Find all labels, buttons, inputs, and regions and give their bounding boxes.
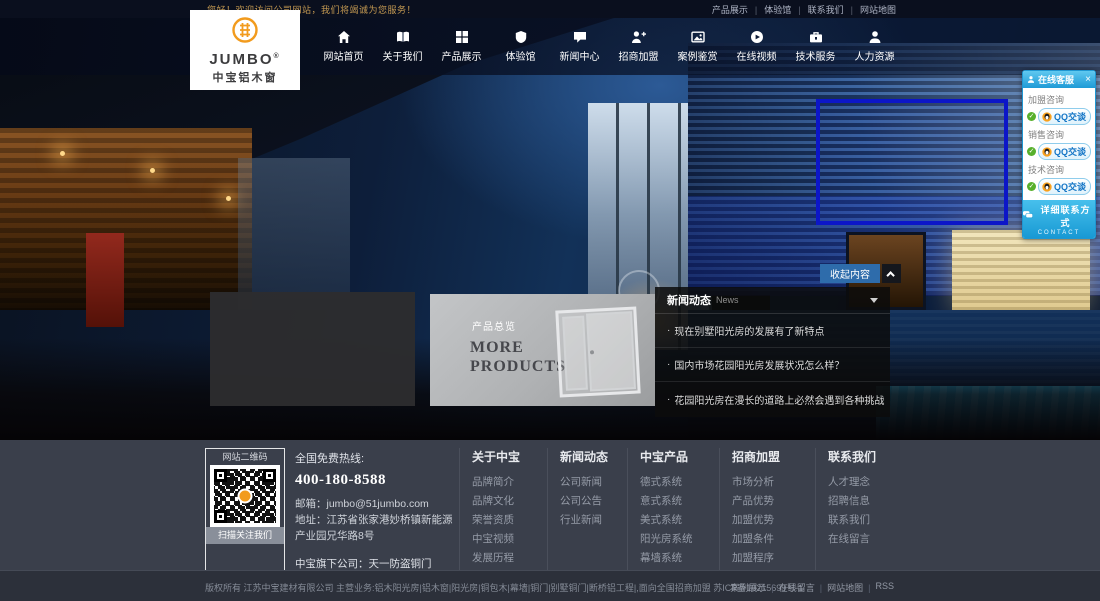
footer-link[interactable]: 产品优势 xyxy=(732,492,815,511)
online-service-header: 在线客服 × xyxy=(1023,71,1095,88)
book-icon xyxy=(396,30,410,44)
footer-link[interactable]: 加盟程序 xyxy=(732,549,815,568)
nav-item-tech[interactable]: 技术服务 xyxy=(786,18,845,75)
contact-detail-button[interactable]: 详细联系方式 CONTACT xyxy=(1023,200,1095,238)
news-item[interactable]: 花园阳光房在漫长的道路上必然会遇到各种挑战 xyxy=(655,382,890,416)
nav-label: 体验馆 xyxy=(506,48,536,63)
topbar-link-products[interactable]: 产品展示 xyxy=(712,3,764,16)
footer-column-title: 关于中宝 xyxy=(472,448,547,465)
window-graphic-icon xyxy=(555,304,641,405)
video-icon xyxy=(750,30,764,44)
user-icon xyxy=(868,30,882,44)
footer-column-title: 中宝产品 xyxy=(640,448,719,465)
news-item[interactable]: 国内市场花园阳光房发展状况怎么样？ xyxy=(655,348,890,382)
topbar-link-contact[interactable]: 联系我们 xyxy=(808,3,860,16)
online-service-panel: 在线客服 × 加盟咨询 ✓ QQ交谈 销售咨询 ✓ QQ交谈 技术咨询 xyxy=(1022,70,1096,239)
products-tag: 产品总览 xyxy=(472,318,516,333)
nav-label: 人力资源 xyxy=(855,48,895,63)
site-logo[interactable]: JUMBO® 中宝铝木窗 xyxy=(190,10,300,90)
footer-address: 地址：江苏省张家港妙桥镇新能源产业园兄华路8号 xyxy=(295,512,453,544)
footer-link[interactable]: 阳光房系统 xyxy=(640,530,719,549)
chat-icon xyxy=(573,30,587,44)
footer-link[interactable]: 公司新闻 xyxy=(560,473,627,492)
nav-item-products[interactable]: 产品展示 xyxy=(432,18,491,75)
footer: 网站二维码 扫描关注我们 全国免费热线: 400-180-8588 邮箱：jum… xyxy=(0,440,1100,570)
footer-link[interactable]: 发展历程 xyxy=(472,549,547,568)
qq-chat-button[interactable]: QQ交谈 xyxy=(1038,178,1091,195)
footer-link[interactable]: 幕墙系统 xyxy=(640,549,719,568)
nav-label: 产品展示 xyxy=(442,48,482,63)
home-icon xyxy=(337,30,351,44)
footer-column-title: 联系我们 xyxy=(828,448,901,465)
qq-chat-button[interactable]: QQ交谈 xyxy=(1038,108,1091,125)
qq-group-label: 技术咨询 xyxy=(1028,163,1091,176)
more-products-card[interactable]: 产品总览 MORE PRODUCTS xyxy=(430,294,655,406)
footer-link[interactable]: 中宝视频 xyxy=(472,530,547,549)
user-plus-icon xyxy=(631,30,646,44)
hero-selection-rect xyxy=(816,99,1008,225)
collapse-arrow-button[interactable] xyxy=(882,264,901,283)
logo-brand: JUMBO® xyxy=(209,52,280,67)
contact-sub-label: CONTACT xyxy=(1023,230,1095,236)
hero-red-wall xyxy=(86,233,124,327)
slide-card-dark xyxy=(210,292,415,406)
nav-label: 案例鉴赏 xyxy=(678,48,718,63)
footer-column-title: 招商加盟 xyxy=(732,448,815,465)
hotline-number: 400-180-8588 xyxy=(295,472,453,489)
online-service-body: 加盟咨询 ✓ QQ交谈 销售咨询 ✓ QQ交谈 技术咨询 ✓ xyxy=(1023,88,1095,200)
hero-interior xyxy=(0,128,252,310)
check-icon: ✓ xyxy=(1027,147,1036,156)
shield-icon xyxy=(514,30,528,44)
qr-code xyxy=(210,465,280,527)
nav-item-join[interactable]: 招商加盟 xyxy=(609,18,668,75)
footer-link[interactable]: 人才理念 xyxy=(828,473,901,492)
nav-item-hr[interactable]: 人力资源 xyxy=(845,18,904,75)
news-title: 新闻动态 xyxy=(667,292,711,308)
nav-item-about[interactable]: 关于我们 xyxy=(373,18,432,75)
footer-link[interactable]: 品牌文化 xyxy=(472,492,547,511)
footer-column-title: 新闻动态 xyxy=(560,448,627,465)
nav-label: 新闻中心 xyxy=(560,48,600,63)
footer-link[interactable]: 意式系统 xyxy=(640,492,719,511)
copyright-link-cases[interactable]: 案例展示 xyxy=(730,581,778,594)
chat-bubbles-icon xyxy=(1023,211,1033,221)
topbar-link-sitemap[interactable]: 网站地图 xyxy=(860,3,896,16)
footer-link[interactable]: 德式系统 xyxy=(640,473,719,492)
nav-label: 技术服务 xyxy=(796,48,836,63)
footer-link[interactable]: 荣誉资质 xyxy=(472,511,547,530)
main-nav: 网站首页 关于我们 产品展示 体验馆 新闻中心 招商加盟 xyxy=(0,18,1100,75)
person-icon xyxy=(1027,71,1035,89)
nav-item-news[interactable]: 新闻中心 xyxy=(550,18,609,75)
news-header: 新闻动态 News xyxy=(655,287,890,314)
grid-icon xyxy=(455,30,469,44)
qq-chat-button[interactable]: QQ交谈 xyxy=(1038,143,1091,160)
news-subtitle: News xyxy=(716,295,870,305)
qq-group-label: 销售咨询 xyxy=(1028,128,1091,141)
copyright-text: 版权所有 江苏中宝建材有限公司 主营业务:铝木阳光房|铝木窗|阳光房|铜包木|幕… xyxy=(205,581,803,594)
check-icon: ✓ xyxy=(1027,182,1036,191)
copyright-link-message[interactable]: 在线留言 xyxy=(779,581,827,594)
qr-title: 网站二维码 xyxy=(206,449,284,465)
topbar: 您好！欢迎访问公司网站，我们将竭诚为您服务！ 产品展示 体验馆 联系我们 网站地… xyxy=(0,0,1100,18)
topbar-links: 产品展示 体验馆 联系我们 网站地图 xyxy=(712,3,896,16)
footer-link[interactable]: 市场分析 xyxy=(732,473,815,492)
qq-penguin-icon xyxy=(1042,147,1052,157)
nav-item-showroom[interactable]: 体验馆 xyxy=(491,18,550,75)
nav-label: 在线视频 xyxy=(737,48,777,63)
hero-mid-wall xyxy=(238,158,350,310)
nav-label: 网站首页 xyxy=(324,48,364,63)
nav-label: 关于我们 xyxy=(383,48,423,63)
footer-email: 邮箱：jumbo@51jumbo.com xyxy=(295,496,453,512)
topbar-link-showroom[interactable]: 体验馆 xyxy=(764,3,807,16)
collapse-controls: 收起内容 xyxy=(820,264,901,283)
footer-link[interactable]: 公司公告 xyxy=(560,492,627,511)
copyright-link-sitemap[interactable]: 网站地图 xyxy=(827,581,875,594)
footer-link[interactable]: 加盟条件 xyxy=(732,530,815,549)
news-panel: 新闻动态 News 现在别墅阳光房的发展有了新特点 国内市场花园阳光房发展状况怎… xyxy=(655,287,890,417)
qq-penguin-icon xyxy=(1042,112,1052,122)
check-icon: ✓ xyxy=(1027,112,1036,121)
hero-lamp xyxy=(226,196,231,201)
toolbox-icon xyxy=(809,30,823,44)
copyright-links: 案例展示 在线留言 网站地图 RSS xyxy=(730,581,894,594)
footer-link[interactable]: 联系我们 xyxy=(828,511,901,530)
nav-label: 招商加盟 xyxy=(619,48,659,63)
footer-link[interactable]: 招聘信息 xyxy=(828,492,901,511)
qq-row: ✓ QQ交谈 xyxy=(1027,108,1091,125)
qq-row: ✓ QQ交谈 xyxy=(1027,143,1091,160)
hero-lamp xyxy=(150,168,155,173)
nav-item-video[interactable]: 在线视频 xyxy=(727,18,786,75)
copyright-link-rss[interactable]: RSS xyxy=(875,581,894,594)
qq-row: ✓ QQ交谈 xyxy=(1027,178,1091,195)
hero-lamp xyxy=(60,151,65,156)
chevron-up-icon xyxy=(886,271,894,279)
hero-lit-balcony xyxy=(952,230,1090,312)
news-item[interactable]: 现在别墅阳光房的发展有了新特点 xyxy=(655,314,890,348)
close-icon[interactable]: × xyxy=(1085,75,1091,85)
logo-emblem-icon xyxy=(231,16,259,49)
qr-caption: 扫描关注我们 xyxy=(206,527,284,544)
footer-subsidiary: 中宝旗下公司：天一防盗铜门 xyxy=(295,556,453,571)
nav-items: 网站首页 关于我们 产品展示 体验馆 新闻中心 招商加盟 xyxy=(314,18,904,75)
online-service-title: 在线客服 xyxy=(1038,73,1082,86)
photo-icon xyxy=(691,30,705,44)
copyright-bar: 版权所有 江苏中宝建材有限公司 主营业务:铝木阳光房|铝木窗|阳光房|铜包木|幕… xyxy=(0,570,1100,601)
footer-link[interactable]: 加盟优势 xyxy=(732,511,815,530)
logo-subtitle: 中宝铝木窗 xyxy=(213,69,278,85)
footer-link[interactable]: 行业新闻 xyxy=(560,511,627,530)
collapse-content-button[interactable]: 收起内容 xyxy=(820,264,880,283)
qq-group-label: 加盟咨询 xyxy=(1028,93,1091,106)
qr-center-logo xyxy=(238,489,253,504)
qq-penguin-icon xyxy=(1042,182,1052,192)
nav-item-cases[interactable]: 案例鉴赏 xyxy=(668,18,727,75)
footer-link[interactable]: 在线留言 xyxy=(828,530,901,549)
footer-link[interactable]: 美式系统 xyxy=(640,511,719,530)
nav-item-home[interactable]: 网站首页 xyxy=(314,18,373,75)
chevron-down-icon[interactable] xyxy=(870,298,878,303)
hotline-label: 全国免费热线: xyxy=(295,450,453,466)
footer-link[interactable]: 品牌简介 xyxy=(472,473,547,492)
page: 您好！欢迎访问公司网站，我们将竭诚为您服务！ 产品展示 体验馆 联系我们 网站地… xyxy=(0,0,1100,601)
